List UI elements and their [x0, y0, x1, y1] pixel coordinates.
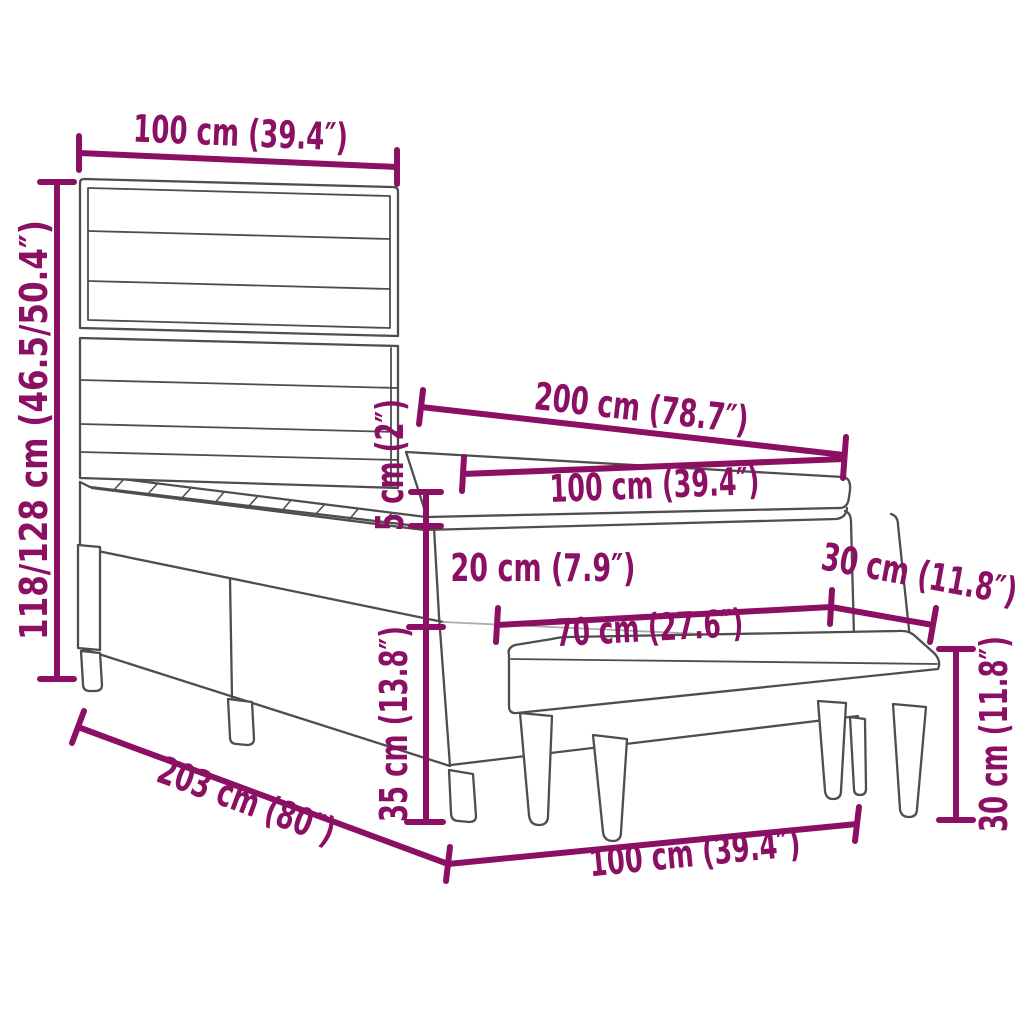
diagram-canvas: 100 cm (39.4″) 118/128 cm (46.5/50.4″) 2… [0, 0, 1024, 1024]
dim-bench-depth: 30 cm (11.8″) [818, 535, 1021, 642]
bench-leg-front-middle [593, 735, 627, 841]
dim-bed-length: 200 cm (78.7″) [419, 374, 844, 455]
dim-bed-total-length-label: 203 cm (80″) [152, 748, 342, 854]
dim-frame-height-label: 35 cm (13.8″) [372, 626, 416, 822]
dim-headboard-height: 118/128 cm (46.5/50.4″) [12, 182, 74, 679]
dim-headboard-width-label: 100 cm (39.4″) [132, 107, 349, 160]
bed-side-bottom-edge [451, 716, 858, 765]
dim-bench-height-label: 30 cm (11.8″) [972, 636, 1016, 832]
dim-bench-height: 30 cm (11.8″) [939, 636, 1016, 832]
dim-bench-height-line [939, 649, 973, 820]
bench-leg-front-left [520, 713, 552, 825]
dim-topper-height-label: 5 cm (2″) [368, 399, 412, 531]
bench-leg-right [893, 704, 926, 817]
bed-leg-front-left [81, 651, 102, 691]
dim-boxspring-height-label: 20 cm (7.9″) [451, 546, 636, 590]
headboard-post [78, 545, 100, 650]
bed-leg-corner [449, 770, 476, 822]
bench-leg-front-right [818, 701, 846, 799]
dim-headboard-width: 100 cm (39.4″) [79, 107, 397, 184]
bench-leg-back-right-partial [850, 717, 866, 795]
headboard-upper-panel [80, 179, 398, 336]
headboard-lower-panel [80, 338, 398, 488]
bed-leg-middle [228, 699, 254, 745]
dim-bench-total-width: 100 cm (39.4″) [446, 807, 859, 885]
dim-headboard-height-label: 118/128 cm (46.5/50.4″) [12, 220, 56, 640]
dim-mattress-width-label: 100 cm (39.4″) [549, 459, 761, 511]
dim-bench-depth-label: 30 cm (11.8″) [818, 535, 1021, 614]
bed-drawing [78, 179, 910, 822]
bench-drawing [509, 631, 940, 841]
dimension-diagram: 100 cm (39.4″) 118/128 cm (46.5/50.4″) 2… [0, 0, 1024, 1024]
